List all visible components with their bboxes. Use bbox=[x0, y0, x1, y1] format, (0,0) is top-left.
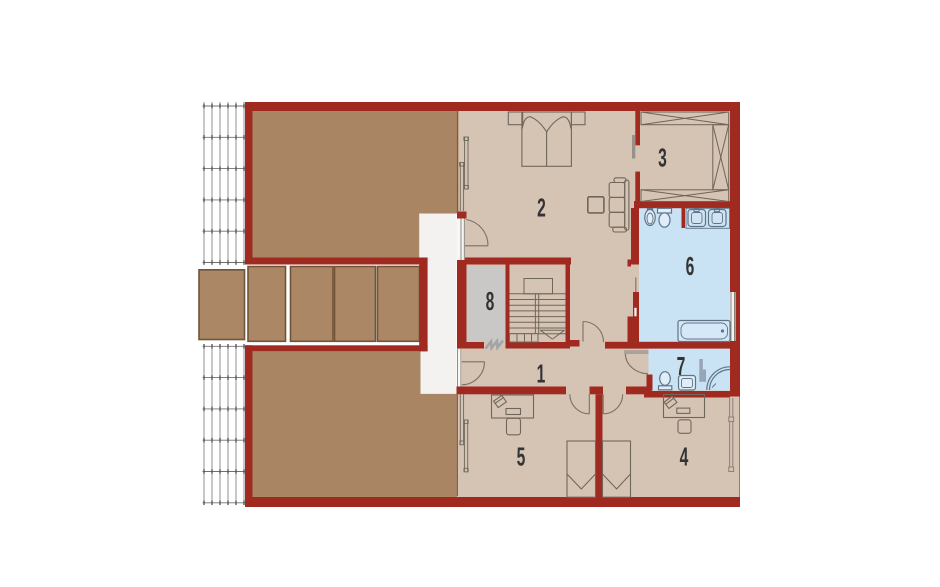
svg-text:7: 7 bbox=[677, 352, 686, 381]
svg-text:6: 6 bbox=[686, 252, 695, 281]
svg-text:8: 8 bbox=[486, 287, 495, 316]
svg-text:5: 5 bbox=[517, 442, 526, 471]
svg-text:3: 3 bbox=[658, 143, 667, 172]
svg-text:4: 4 bbox=[680, 442, 689, 471]
svg-text:2: 2 bbox=[537, 193, 546, 222]
svg-text:1: 1 bbox=[537, 359, 546, 388]
